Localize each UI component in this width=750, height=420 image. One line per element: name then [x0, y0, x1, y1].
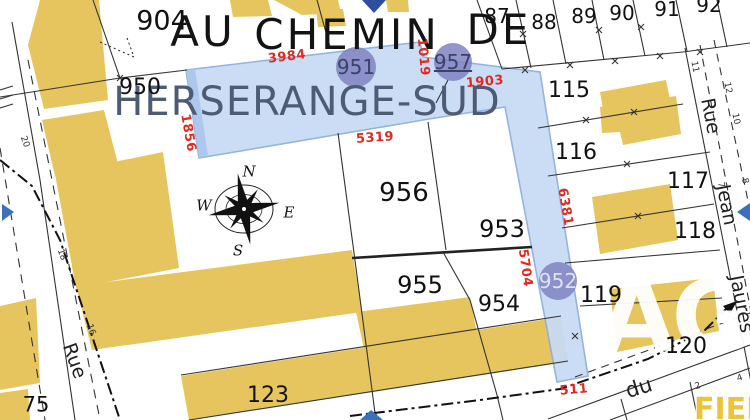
measure-511: 511	[559, 382, 589, 397]
parcel-950: 950	[119, 77, 161, 99]
street-rue-right: Rue	[697, 96, 723, 135]
parcel-904: 904	[136, 8, 188, 35]
parcel-92: 92	[696, 0, 721, 15]
parcel-circle-label-952: 952	[539, 271, 577, 291]
parcel-116: 116	[555, 142, 597, 164]
parcel-119: 119	[580, 285, 622, 307]
parcel-953: 953	[479, 217, 525, 241]
parcel-120: 120	[665, 336, 707, 358]
house-number-11: 11	[688, 61, 699, 74]
corner-watermark: FIERR	[694, 392, 750, 420]
compass-letter-n: N	[242, 165, 255, 180]
parcel-circle-label-951: 951	[337, 57, 375, 77]
parcel-89: 89	[571, 6, 596, 26]
parcel-956: 956	[379, 180, 429, 206]
building	[55, 152, 179, 288]
house-number-12: 12	[721, 82, 732, 95]
measure-1019: 1019	[415, 37, 431, 76]
compass-letter-s: S	[233, 244, 243, 259]
parcel-117: 117	[667, 171, 709, 193]
parcel-118: 118	[674, 221, 716, 243]
measure-5319: 5319	[355, 130, 394, 146]
parcel-circle-label-957: 957	[434, 52, 472, 72]
parcel-955: 955	[397, 273, 443, 297]
parcel-115: 115	[548, 80, 590, 102]
parcel-88: 88	[531, 12, 556, 32]
cadastral-map: AG FIERR AUCHEMINDEHERSERANGE-SUD9049508…	[0, 0, 750, 420]
compass-letter-w: W	[196, 199, 211, 214]
house-number-10: 10	[729, 113, 740, 126]
parcel-87: 87	[484, 6, 509, 26]
measure-1903: 1903	[465, 74, 504, 90]
parcel-954: 954	[478, 294, 520, 316]
building	[0, 298, 40, 390]
parcel-75: 75	[23, 395, 50, 416]
compass-letter-e: E	[284, 206, 295, 221]
place-name-herserange-sud: HERSERANGE-SUD	[113, 82, 500, 122]
parcel-123: 123	[247, 385, 289, 407]
parcel-90: 90	[609, 3, 634, 23]
building	[28, 0, 108, 109]
parcel-91: 91	[654, 0, 679, 19]
